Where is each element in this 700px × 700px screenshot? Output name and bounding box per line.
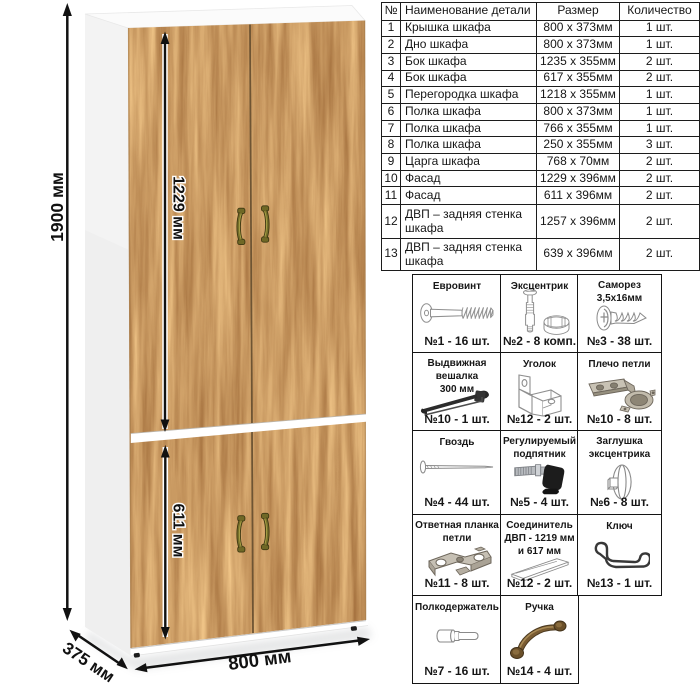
svg-text:1900 мм: 1900 мм [47,172,67,242]
svg-text:611 мм: 611 мм [170,504,187,558]
svg-text:1229 мм: 1229 мм [170,176,187,240]
